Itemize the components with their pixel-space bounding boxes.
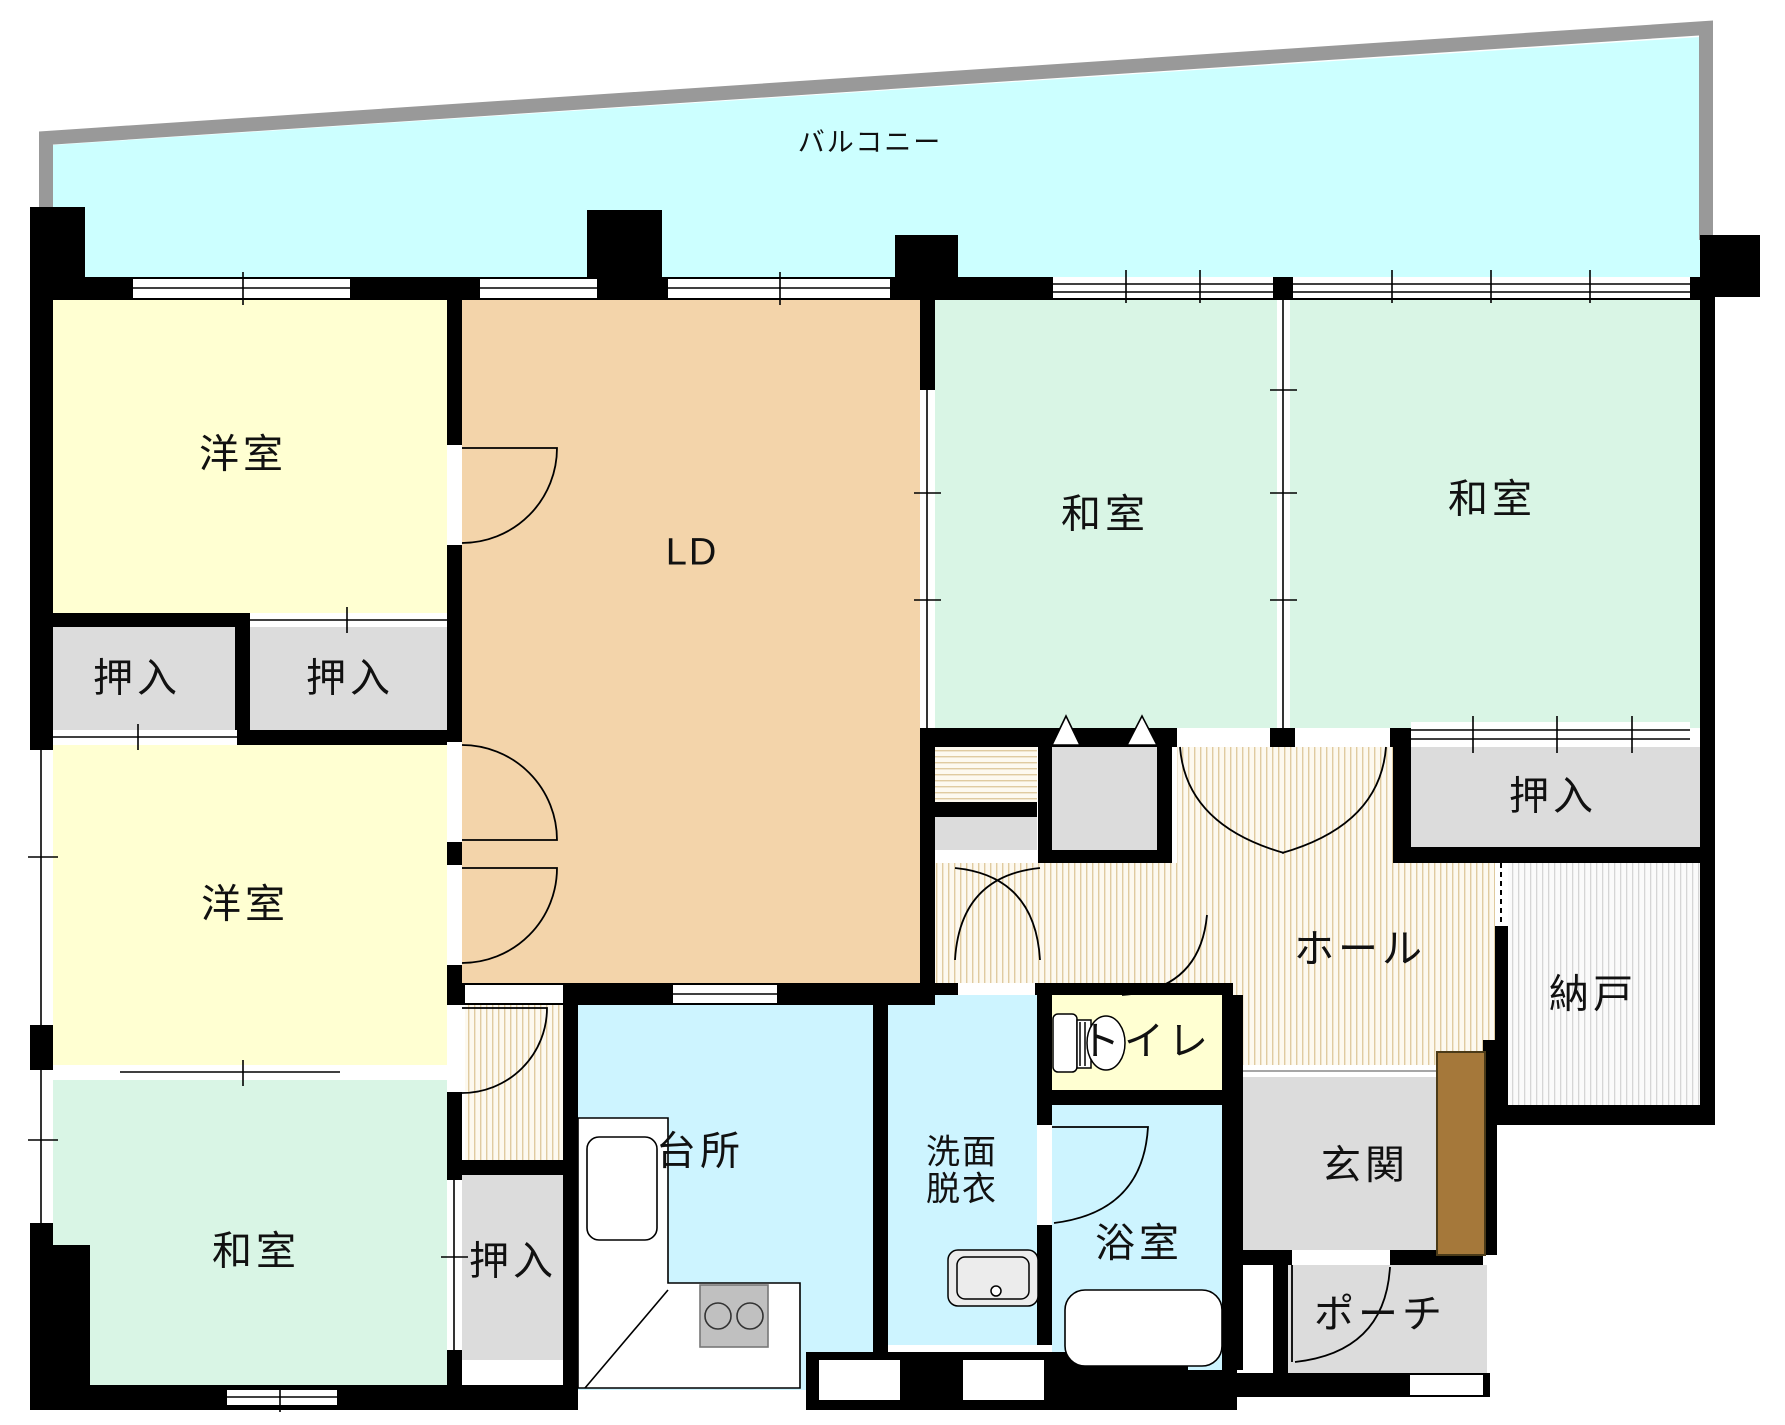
label-storage: 納戸 xyxy=(1549,973,1637,1016)
label-bath: 浴室 xyxy=(1095,1222,1183,1265)
hall-upper xyxy=(1177,747,1393,863)
cabinet-b xyxy=(1052,745,1157,850)
stove xyxy=(700,1285,768,1347)
washbasin xyxy=(948,1250,1038,1306)
label-washroom-line1: 洗面 xyxy=(926,1133,998,1171)
label-closet-1: 押入 xyxy=(93,657,181,700)
floor-plan-drawing xyxy=(0,0,1785,1425)
label-kitchen: 台所 xyxy=(656,1130,744,1173)
label-toilet: トイレ xyxy=(1080,1020,1212,1063)
label-washroom-line2: 脱衣 xyxy=(926,1170,998,1208)
front-door xyxy=(1437,1052,1485,1255)
floor-plan: バルコニー 洋室 押入 押入 洋室 和室 押入 LD 和室 和室 押入 ホール … xyxy=(0,0,1785,1425)
label-entry: 玄関 xyxy=(1321,1144,1409,1187)
cabinet-a xyxy=(933,817,1037,850)
label-porch: ポーチ xyxy=(1314,1293,1446,1336)
label-japanese-room-2: 和室 xyxy=(1448,478,1536,521)
label-closet-2: 押入 xyxy=(306,657,394,700)
label-closet-4: 押入 xyxy=(1509,775,1597,818)
kitchen-sink xyxy=(587,1137,657,1240)
label-washroom: 洗面脱衣 xyxy=(926,1134,998,1207)
label-closet-3: 押入 xyxy=(469,1240,557,1283)
label-japanese-room-1: 和室 xyxy=(1061,493,1149,536)
room-living-dining xyxy=(462,300,920,983)
label-japanese-room-3: 和室 xyxy=(212,1230,300,1273)
label-western-room-1: 洋室 xyxy=(199,433,287,476)
label-living-dining: LD xyxy=(666,532,719,573)
label-hall: ホール xyxy=(1294,928,1426,971)
label-western-room-2: 洋室 xyxy=(201,883,289,926)
bathtub xyxy=(1065,1290,1222,1366)
shelf-unit xyxy=(933,747,1037,802)
label-balcony: バルコニー xyxy=(798,128,942,157)
